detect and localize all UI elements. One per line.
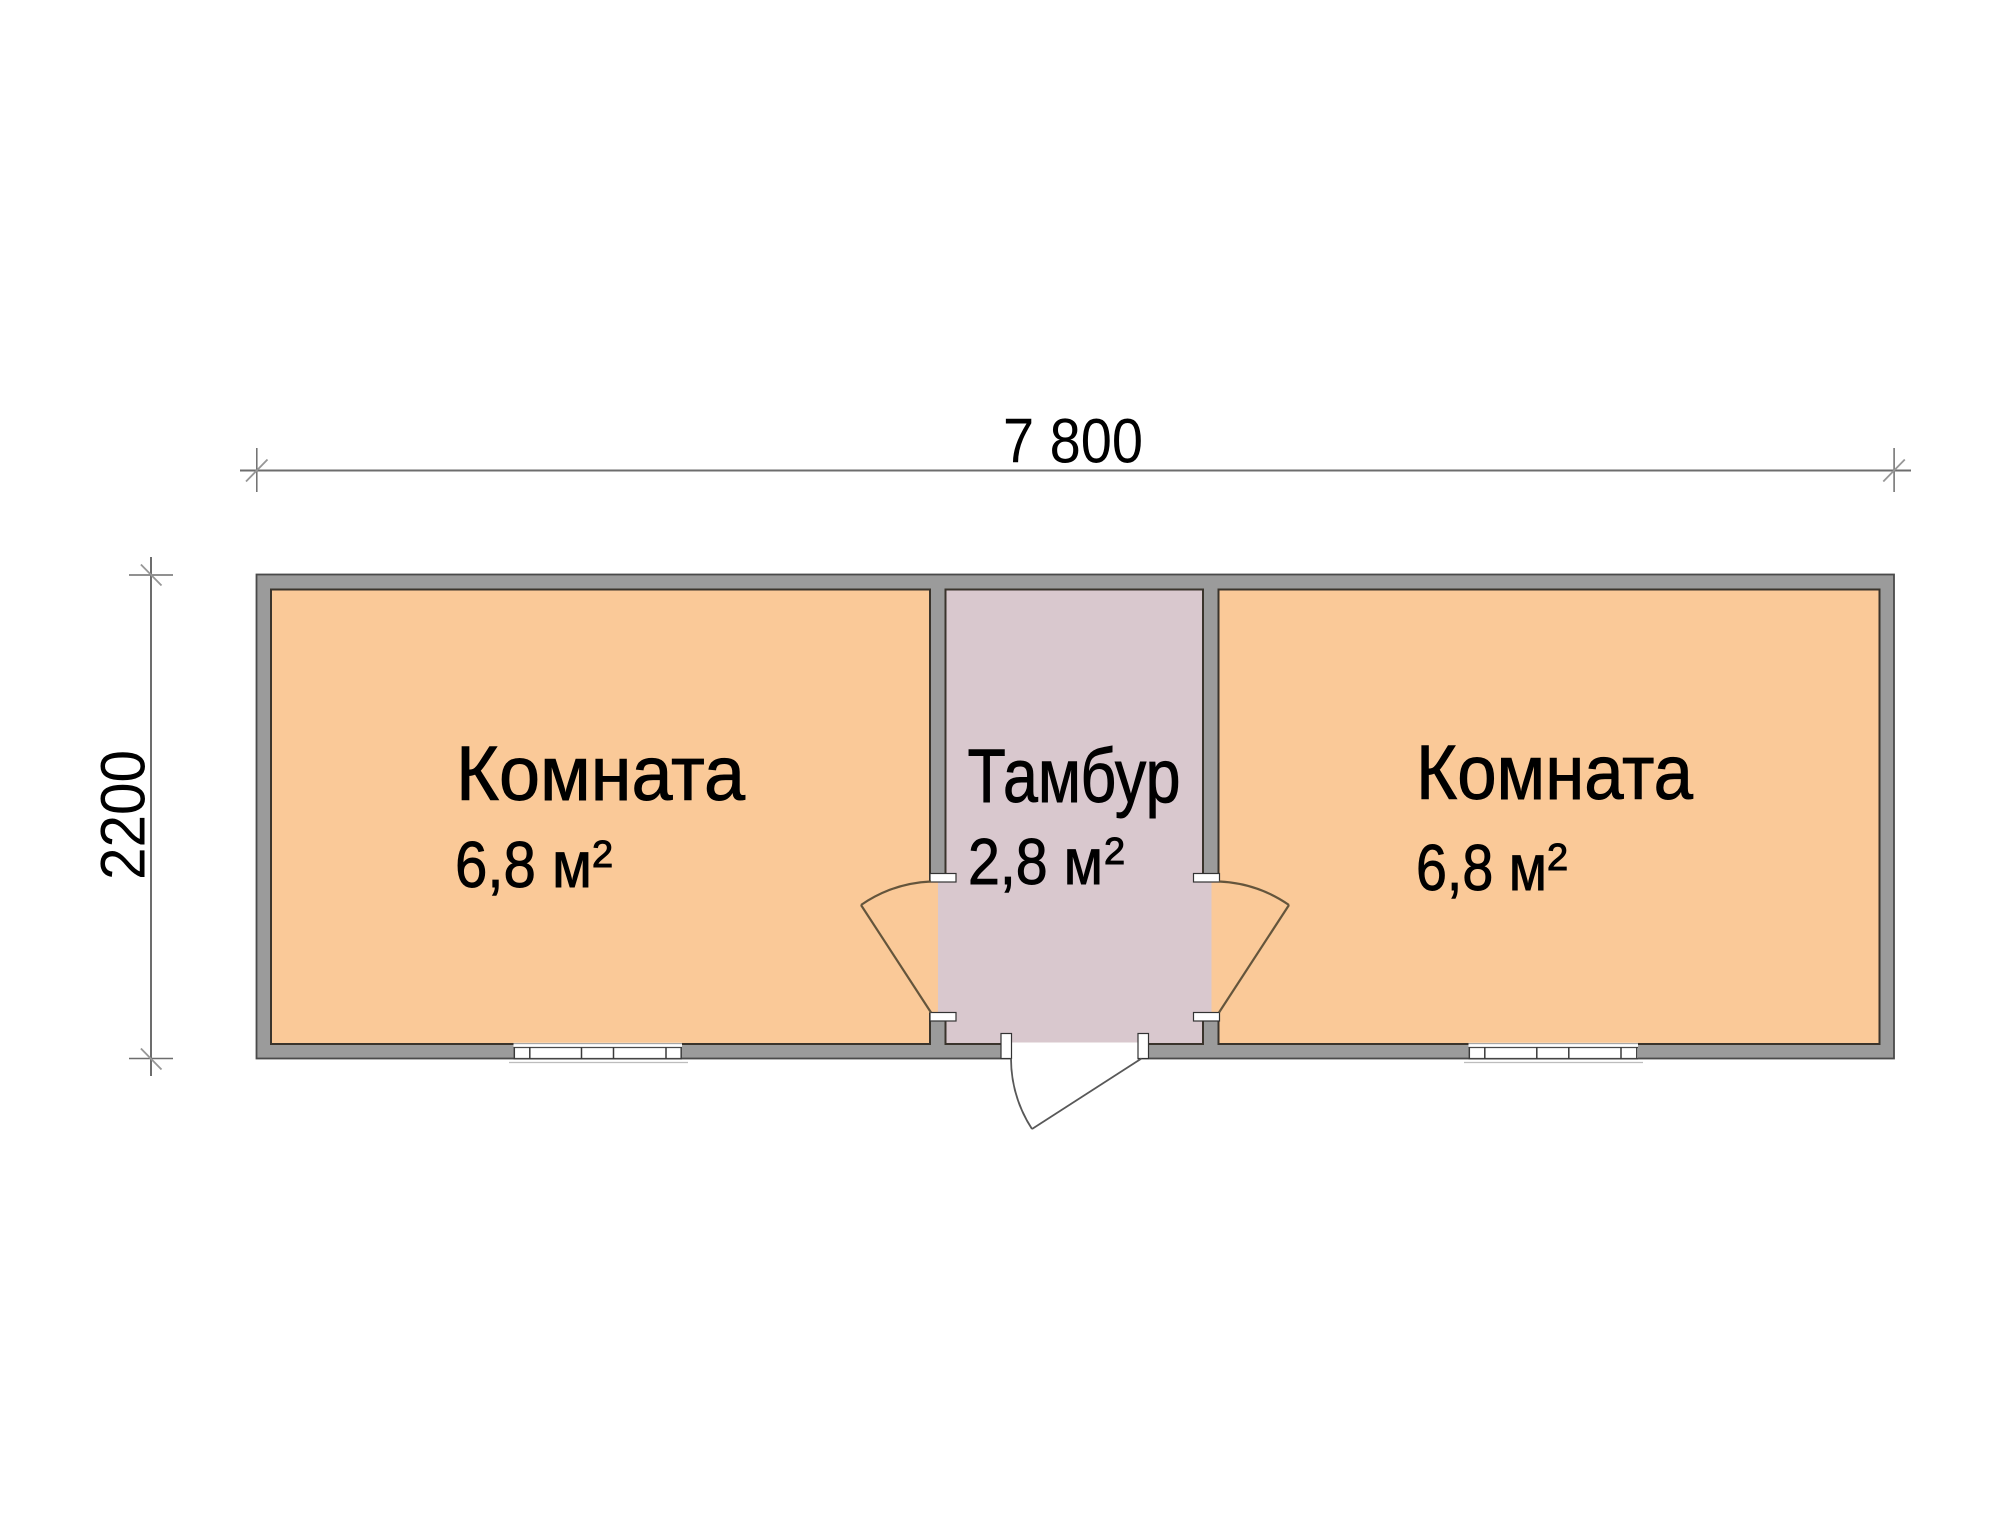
svg-text:2,8 м: 2,8 м <box>968 825 1103 898</box>
svg-text:2200: 2200 <box>89 750 159 880</box>
svg-text:Комната: Комната <box>1416 730 1693 816</box>
svg-text:6,8 м: 6,8 м <box>455 828 592 901</box>
svg-text:6,8 м: 6,8 м <box>1416 831 1547 904</box>
svg-text:Комната: Комната <box>456 731 745 817</box>
svg-text:Тамбур: Тамбур <box>968 734 1181 819</box>
svg-text:7 800: 7 800 <box>1003 407 1143 477</box>
